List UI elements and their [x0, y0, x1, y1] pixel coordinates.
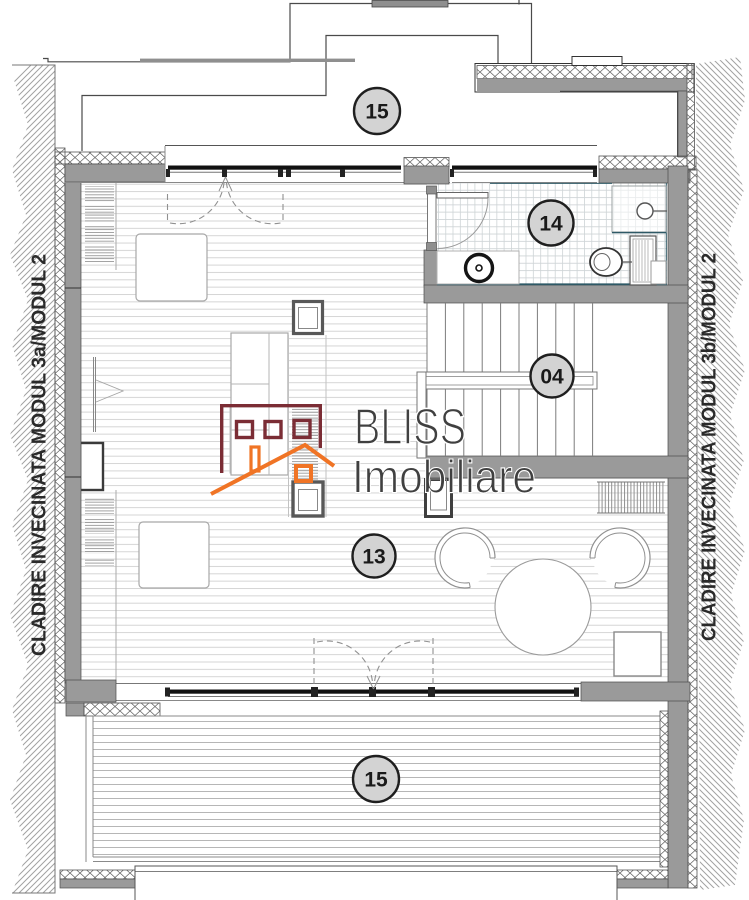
svg-text:BLISS: BLISS — [354, 398, 466, 455]
svg-text:15: 15 — [365, 101, 389, 124]
svg-text:Imobiliare: Imobiliare — [352, 451, 536, 503]
svg-text:15: 15 — [364, 769, 388, 792]
svg-text:14: 14 — [539, 213, 563, 236]
svg-text:CLADIRE INVECINATA MODUL 3a/M: CLADIRE INVECINATA MODUL 3a/MODUL 2 — [29, 254, 51, 656]
svg-text:CLADIRE INVECINATA MODUL 3b/M: CLADIRE INVECINATA MODUL 3b/MODUL 2 — [699, 253, 721, 641]
svg-text:04: 04 — [540, 366, 564, 389]
svg-text:13: 13 — [362, 546, 385, 569]
